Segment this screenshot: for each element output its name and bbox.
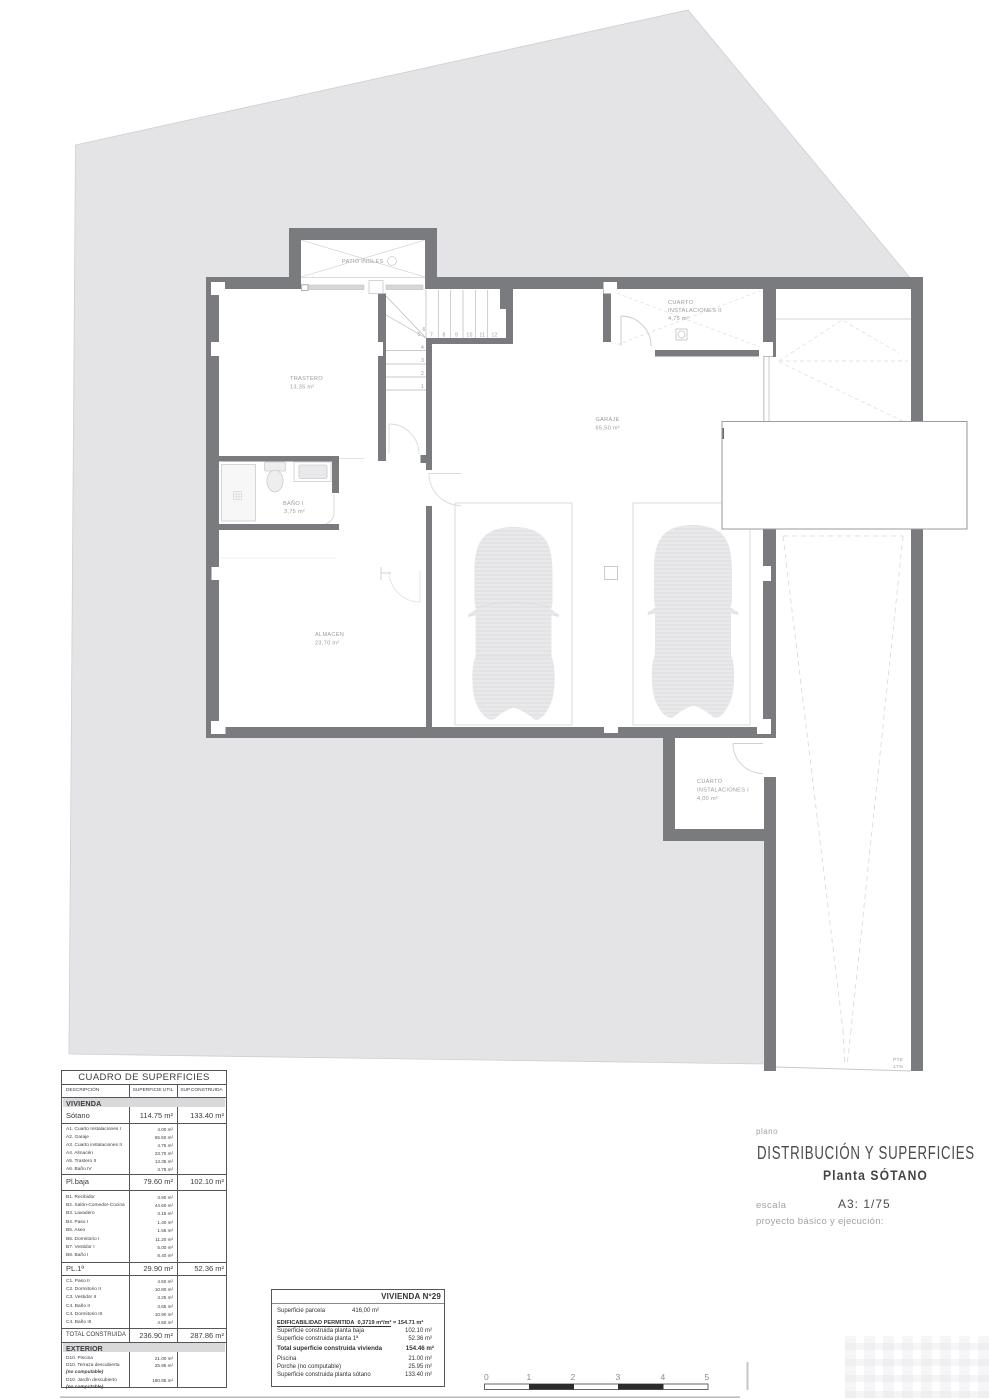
svg-text:17%: 17% [893, 1064, 904, 1070]
svg-text:8: 8 [443, 333, 446, 339]
svg-text:0: 0 [484, 1372, 489, 1382]
svg-text:11: 11 [480, 333, 486, 339]
svg-text:ALMACEN: ALMACEN [315, 632, 344, 638]
svg-text:23,70 m²: 23,70 m² [315, 641, 339, 647]
svg-text:PATIO INGLES: PATIO INGLES [342, 259, 384, 265]
svg-text:4: 4 [421, 345, 424, 351]
svg-text:TRASTERO: TRASTERO [290, 376, 323, 382]
svg-text:7: 7 [430, 333, 433, 339]
svg-text:BAÑO I: BAÑO I [283, 500, 304, 507]
svg-text:13,35 m²: 13,35 m² [290, 385, 314, 391]
svg-text:10: 10 [467, 333, 473, 339]
svg-text:4: 4 [661, 1372, 666, 1382]
svg-text:3,75 m²: 3,75 m² [284, 509, 305, 515]
svg-text:PTE: PTE [893, 1057, 903, 1063]
svg-text:65,50 m²: 65,50 m² [596, 426, 620, 432]
svg-text:6: 6 [423, 327, 426, 333]
svg-text:12: 12 [492, 333, 498, 339]
svg-text:CUARTO: CUARTO [697, 779, 723, 785]
svg-text:3: 3 [421, 358, 424, 364]
svg-text:CUARTO: CUARTO [668, 300, 694, 306]
svg-text:2: 2 [571, 1372, 576, 1382]
svg-text:1: 1 [527, 1372, 532, 1382]
svg-text:5: 5 [418, 332, 421, 338]
svg-text:GARAJE: GARAJE [596, 417, 620, 423]
svg-text:5: 5 [705, 1372, 710, 1382]
svg-text:1: 1 [421, 384, 424, 390]
svg-text:9: 9 [455, 333, 458, 339]
svg-text:INSTALACIONES II: INSTALACIONES II [668, 308, 722, 314]
svg-text:INSTALACIONES I: INSTALACIONES I [697, 788, 749, 794]
svg-text:4,75 m²: 4,75 m² [668, 316, 689, 322]
svg-text:2: 2 [421, 371, 424, 377]
svg-text:3: 3 [616, 1372, 621, 1382]
svg-text:4,00 m²: 4,00 m² [697, 796, 718, 802]
